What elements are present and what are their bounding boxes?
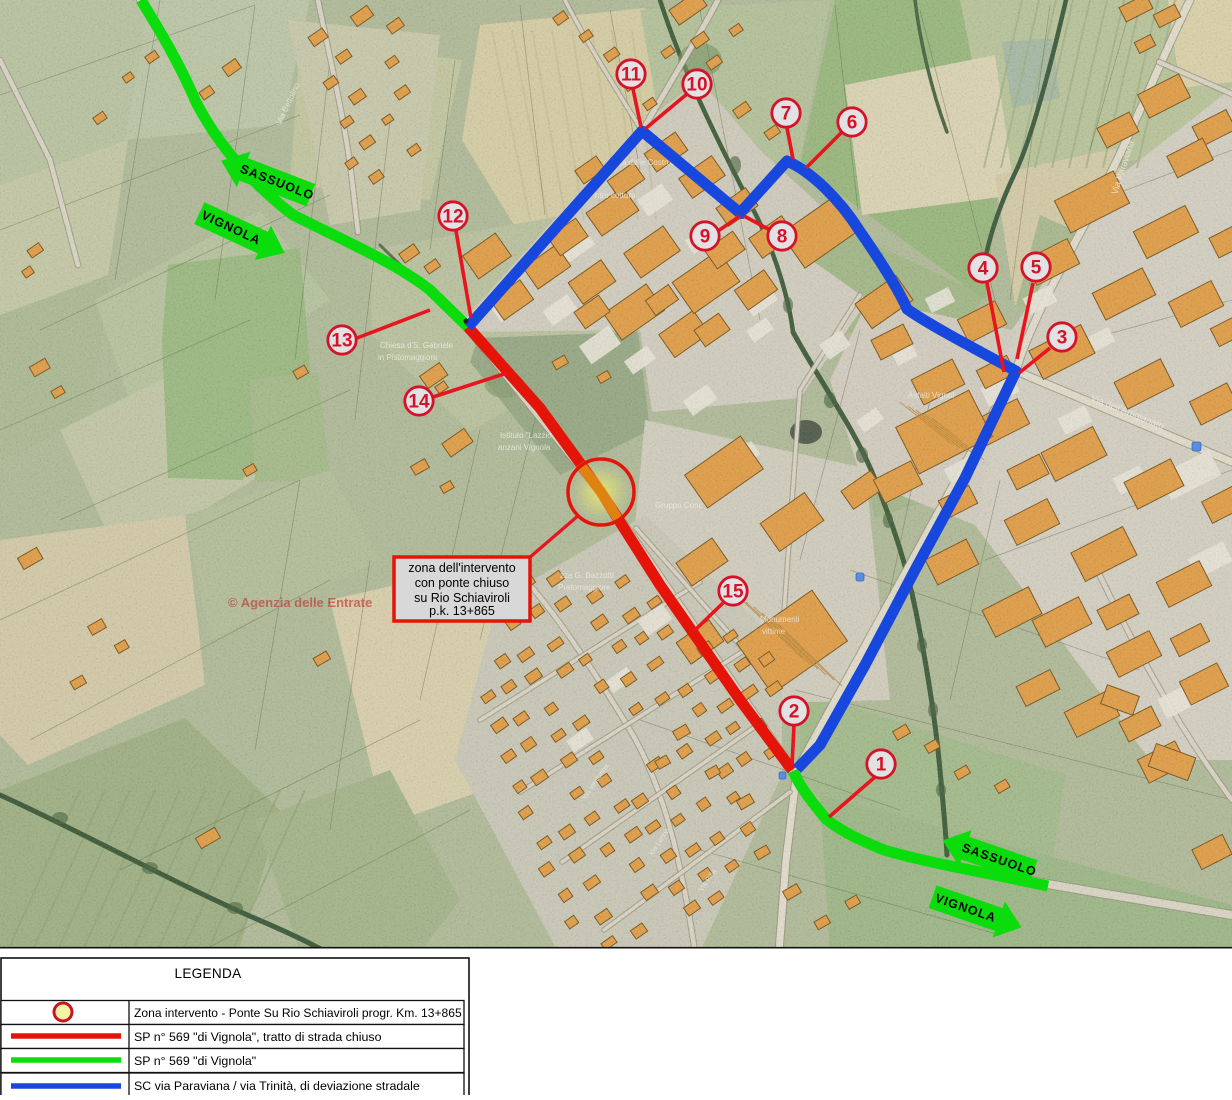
svg-text:8: 8 (777, 227, 788, 248)
svg-text:su Rio Schiaviroli: su Rio Schiaviroli (414, 591, 510, 605)
svg-text:11: 11 (621, 65, 642, 86)
svg-text:SC via Paraviana / via Trinità: SC via Paraviana / via Trinità, di devia… (134, 1079, 420, 1093)
svg-text:SP n° 569 "di Vignola": SP n° 569 "di Vignola" (134, 1054, 256, 1068)
svg-text:14: 14 (408, 392, 430, 413)
svg-text:zona dell'intervento: zona dell'intervento (408, 561, 515, 575)
svg-text:SP n° 569 "di Vignola", tratto: SP n° 569 "di Vignola", tratto di strada… (134, 1030, 382, 1044)
svg-text:13: 13 (331, 331, 352, 352)
svg-text:7: 7 (781, 104, 792, 125)
svg-text:4: 4 (978, 259, 989, 280)
svg-text:12: 12 (442, 207, 463, 228)
svg-text:Zona intervento - Ponte Su Rio: Zona intervento - Ponte Su Rio Schiaviro… (134, 1006, 462, 1020)
svg-text:p.k. 13+865: p.k. 13+865 (429, 604, 495, 618)
svg-text:2: 2 (789, 702, 800, 723)
svg-text:9: 9 (700, 227, 711, 248)
svg-text:5: 5 (1031, 258, 1042, 279)
svg-text:3: 3 (1057, 328, 1068, 349)
svg-text:10: 10 (686, 75, 707, 96)
svg-text:1: 1 (876, 755, 887, 776)
svg-text:6: 6 (847, 113, 858, 134)
svg-text:con ponte chiuso: con ponte chiuso (415, 576, 510, 590)
svg-text:15: 15 (722, 582, 744, 603)
svg-text:LEGENDA: LEGENDA (174, 966, 242, 981)
